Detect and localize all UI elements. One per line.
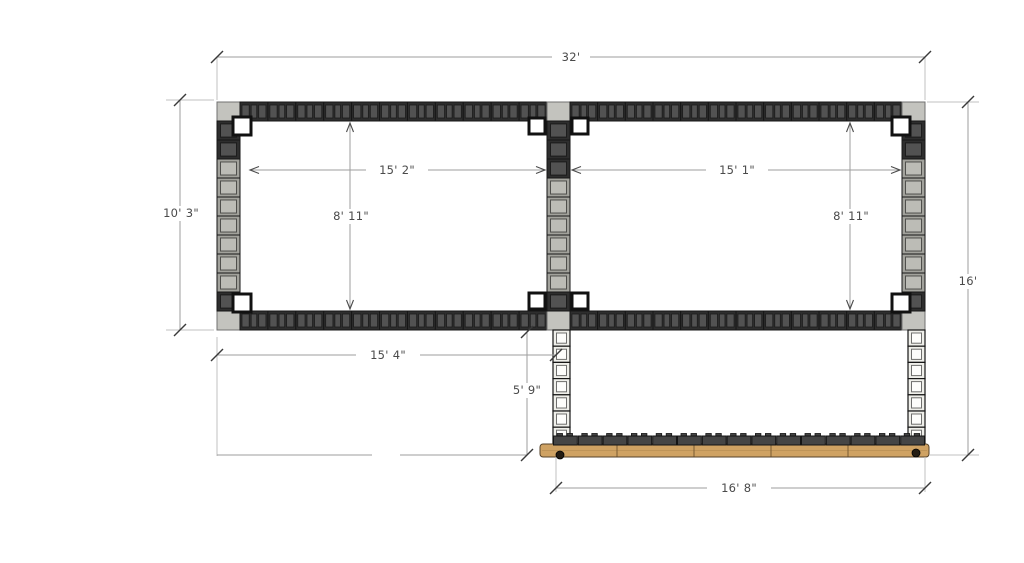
dim-label-right-height: 16' bbox=[959, 274, 978, 288]
dim-label-room-left-width: 15' 2" bbox=[379, 163, 415, 177]
dim-label-lower-left-width: 15' 4" bbox=[370, 348, 406, 362]
middle-wall bbox=[529, 118, 588, 311]
dim-label-overall-width: 32' bbox=[562, 50, 581, 64]
bottom-wall bbox=[217, 311, 925, 330]
lower-middle-column bbox=[553, 330, 570, 443]
masonry-plan-drawing: 32' 10' 3" 16' 15' 2" 15' 1" 8' 11" 8' 1… bbox=[0, 0, 1024, 563]
dim-label-lower-column-height: 5' 9" bbox=[513, 383, 541, 397]
dim-label-footing-beam-length: 16' 8" bbox=[721, 481, 757, 495]
dim-label-room-right-interior-height: 8' 11" bbox=[833, 209, 869, 223]
dim-label-room-left-interior-height: 8' 11" bbox=[333, 209, 369, 223]
lower-right-column bbox=[908, 330, 925, 443]
right-wall bbox=[902, 121, 925, 311]
dim-label-room-right-width: 15' 1" bbox=[719, 163, 755, 177]
left-wall bbox=[217, 121, 240, 311]
dim-label-left-height: 10' 3" bbox=[163, 206, 199, 220]
cad-drawing-viewport: 32' 10' 3" 16' 15' 2" 15' 1" 8' 11" 8' 1… bbox=[0, 0, 1024, 563]
wood-footing-beam bbox=[540, 434, 929, 460]
